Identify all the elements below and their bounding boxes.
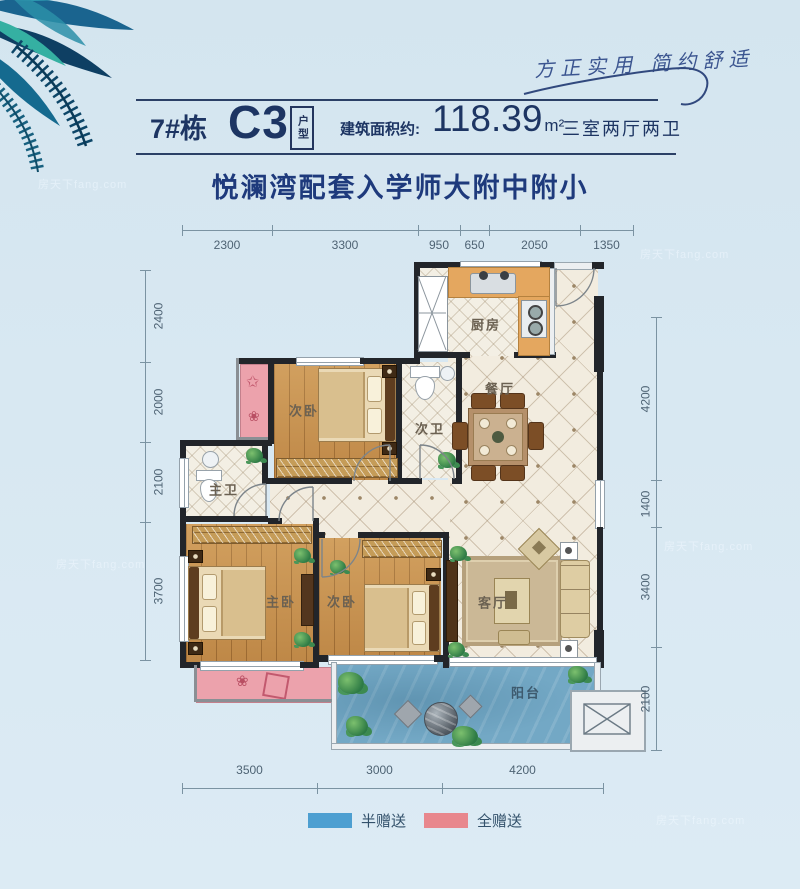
wall — [319, 532, 325, 538]
wall — [268, 478, 352, 484]
area-value: 118.39 — [432, 98, 542, 140]
plate — [506, 445, 517, 456]
blanket — [319, 372, 365, 438]
room-label-bedroom-second: 次卧 — [327, 592, 357, 611]
side-table-lamp — [560, 542, 578, 560]
room-label-dining: 餐厅 — [485, 379, 515, 398]
wall — [360, 358, 420, 364]
dining-table — [468, 408, 528, 466]
dimension: 3300 — [272, 230, 418, 256]
pillow — [367, 408, 382, 434]
side-table-lamp — [560, 640, 578, 658]
wall — [434, 655, 449, 662]
plant — [438, 452, 456, 468]
room-label-balcony: 阳台 — [511, 683, 541, 702]
wall — [268, 358, 274, 444]
wall — [594, 296, 604, 372]
wall — [268, 518, 282, 524]
wall — [396, 478, 422, 484]
plant — [450, 546, 467, 561]
dimension-row-bottom: 3500 3000 4200 — [182, 763, 603, 789]
sofa — [560, 560, 590, 638]
watermark: 房天下fang.com — [640, 246, 729, 262]
dimension-text: 4200 — [638, 385, 652, 412]
plate — [479, 418, 490, 429]
bed — [318, 368, 396, 442]
pillow — [202, 606, 217, 632]
plant — [452, 726, 478, 746]
kitchen-sink — [470, 273, 516, 294]
dimension: 2000 — [145, 362, 171, 442]
wall — [236, 358, 298, 364]
dimension: 4200 — [633, 317, 657, 480]
dimension: 1400 — [633, 480, 657, 527]
bay-outline — [194, 699, 332, 702]
table-decor — [532, 541, 546, 555]
watermark: 房天下fang.com — [664, 538, 753, 554]
nightstand — [382, 365, 397, 378]
lamp — [565, 645, 572, 652]
window — [328, 655, 438, 665]
wall — [300, 662, 319, 668]
header-bottom-rule — [136, 153, 676, 155]
building-number: 7#栋 — [150, 107, 207, 146]
floorplan-page: 房天下fang.com 房天下fang.com 房天下fang.com 房天下f… — [0, 0, 800, 889]
window — [595, 480, 605, 529]
wall — [456, 358, 462, 484]
dimension-col-right: 4200 1400 3400 2100 — [633, 317, 657, 750]
pillow — [412, 621, 426, 645]
flower-icon: ❀ — [236, 672, 249, 690]
faucet-knob — [500, 271, 509, 280]
dimension: 650 — [460, 230, 489, 256]
chair — [452, 422, 468, 450]
globe-table — [424, 702, 458, 736]
dimension-text: 2100 — [151, 469, 165, 496]
dimension-text: 2400 — [151, 303, 165, 330]
headboard — [429, 585, 439, 651]
dimension: 2050 — [489, 230, 580, 256]
wardrobe — [276, 458, 398, 478]
pillow — [412, 591, 426, 615]
wall — [180, 516, 268, 522]
area-label: 建筑面积约: — [340, 118, 420, 139]
tv-cabinet — [301, 574, 314, 626]
wall — [262, 440, 268, 484]
wardrobe — [192, 526, 312, 544]
faucet-knob — [479, 271, 488, 280]
pillow — [202, 574, 217, 600]
chair — [500, 465, 525, 481]
dimension: 3500 — [182, 763, 317, 789]
blanket — [221, 570, 265, 636]
area-value-group: 118.39 m² — [432, 98, 564, 140]
plant — [338, 672, 364, 694]
chair — [471, 465, 496, 481]
bay-outline — [194, 665, 197, 702]
dimension: 3400 — [633, 527, 657, 647]
bay-outline — [236, 358, 239, 440]
legend-full-gift: 全赠送 — [424, 810, 522, 831]
dimension-col-left: 2400 2000 2100 3700 — [145, 270, 171, 660]
watermark: 房天下fang.com — [656, 812, 745, 828]
legend-swatch-pink — [424, 813, 468, 828]
dimension: 1350 — [580, 230, 633, 256]
pillow — [367, 376, 382, 402]
plate — [506, 418, 517, 429]
bed — [188, 566, 266, 640]
wall — [597, 527, 603, 630]
unit-type-label: 户型 — [290, 106, 314, 150]
legend-half-gift: 半赠送 — [308, 810, 406, 831]
flower-icon: ❀ — [248, 408, 260, 425]
washbasin — [440, 366, 455, 381]
header-top-rule — [136, 99, 658, 101]
dimension-text: 2100 — [638, 685, 652, 712]
legend-label: 全赠送 — [477, 810, 522, 831]
headboard — [189, 567, 199, 639]
pillow-decoration — [262, 672, 290, 700]
wall — [597, 372, 603, 480]
stove — [521, 300, 547, 338]
room-label-bedroom-top: 次卧 — [289, 401, 319, 420]
plant — [448, 642, 465, 657]
plant — [246, 448, 263, 463]
dimension: 4200 — [442, 763, 603, 789]
washbasin — [202, 451, 219, 468]
balcony-wall — [331, 662, 337, 750]
wall — [452, 478, 462, 484]
plant — [568, 666, 588, 683]
room-label-bath-second: 次卫 — [415, 419, 445, 438]
room-label-living: 客厅 — [478, 593, 508, 612]
entry-door-jamb — [554, 262, 596, 270]
wall — [592, 262, 604, 269]
dimension-text: 3400 — [638, 574, 652, 601]
room-label-bedroom-master: 主卧 — [266, 592, 296, 611]
room-label-kitchen: 厨房 — [471, 315, 501, 334]
dimension-row-top: 2300 3300 950 650 2050 1350 — [182, 230, 633, 256]
watermark: 房天下fang.com — [56, 556, 145, 572]
school-subtitle: 悦澜湾配套入学师大附中附小 — [0, 166, 800, 205]
bench — [498, 630, 530, 645]
tv-cabinet — [446, 560, 458, 642]
nightstand — [188, 642, 203, 655]
lamp — [565, 547, 572, 554]
plant — [294, 548, 311, 563]
plate — [479, 445, 490, 456]
star-icon: ✩ — [246, 372, 259, 392]
wall — [180, 662, 202, 668]
unit-code: C3 — [228, 95, 289, 149]
dimension: 2400 — [145, 270, 171, 362]
wall — [180, 440, 272, 446]
chair — [528, 422, 544, 450]
flue-shaft — [418, 276, 448, 352]
dimension: 2300 — [182, 230, 272, 256]
dimension-text: 3700 — [151, 578, 165, 605]
room-layout: 三室两厅两卫 — [562, 115, 682, 141]
burner — [528, 321, 543, 336]
plant — [346, 716, 368, 736]
dimension-text: 1400 — [638, 490, 652, 517]
room-label-bath-master: 主卫 — [209, 480, 239, 499]
bed — [364, 584, 440, 652]
dimension: 3700 — [145, 522, 171, 660]
dimension: 3000 — [317, 763, 442, 789]
window — [296, 357, 364, 366]
nightstand — [382, 442, 397, 455]
headboard — [385, 369, 395, 441]
centerpiece — [492, 431, 504, 443]
dimension: 950 — [418, 230, 460, 256]
plant — [330, 560, 346, 574]
legend-label: 半赠送 — [361, 810, 406, 831]
window — [200, 661, 304, 671]
plant — [294, 632, 311, 647]
dimension-text: 2000 — [151, 389, 165, 416]
legend-swatch-blue — [308, 813, 352, 828]
burner — [528, 305, 543, 320]
wardrobe — [362, 540, 442, 558]
blanket — [365, 588, 409, 648]
nightstand — [426, 568, 441, 581]
nightstand — [188, 550, 203, 563]
dimension: 2100 — [633, 647, 657, 750]
dimension: 2100 — [145, 442, 171, 522]
window — [179, 458, 189, 508]
wall — [358, 532, 448, 538]
